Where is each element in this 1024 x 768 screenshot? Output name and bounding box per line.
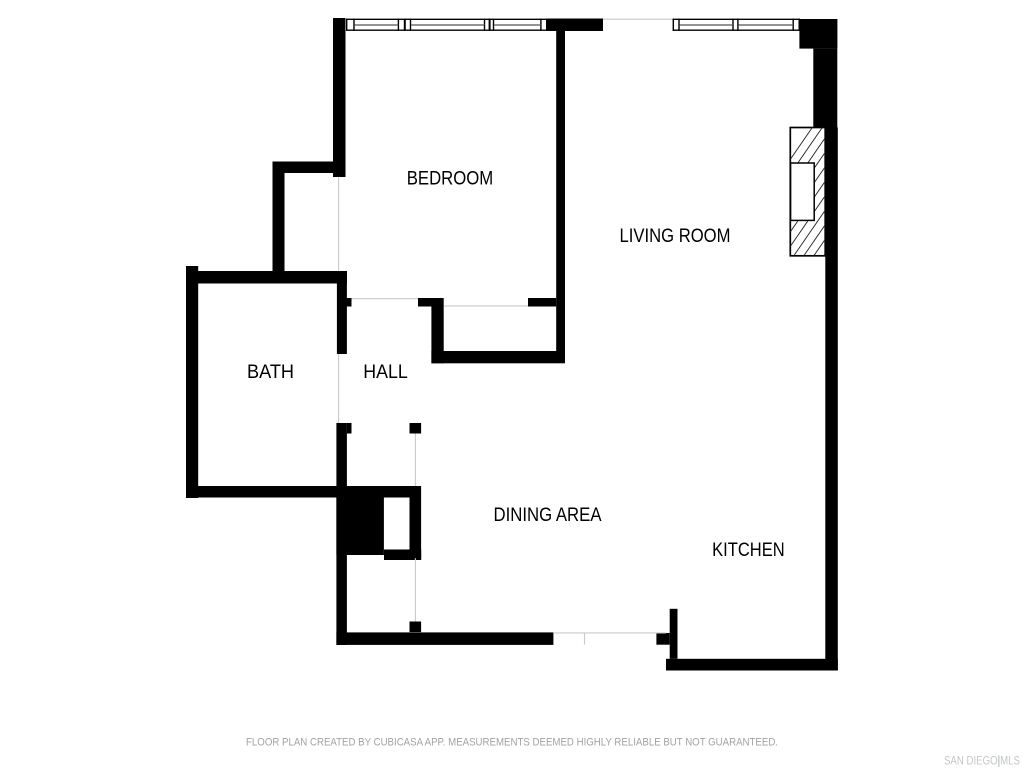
svg-text:HALL: HALL [363,362,408,383]
svg-text:SAN DIEGO|MLS: SAN DIEGO|MLS [944,756,1020,768]
svg-text:BEDROOM: BEDROOM [407,169,494,190]
svg-text:BATH: BATH [247,362,294,383]
svg-text:LIVING ROOM: LIVING ROOM [620,226,731,247]
svg-text:FLOOR PLAN CREATED BY CUBICASA: FLOOR PLAN CREATED BY CUBICASA APP. MEAS… [246,737,778,749]
svg-text:DINING AREA: DINING AREA [494,505,602,526]
svg-text:KITCHEN: KITCHEN [712,540,785,561]
